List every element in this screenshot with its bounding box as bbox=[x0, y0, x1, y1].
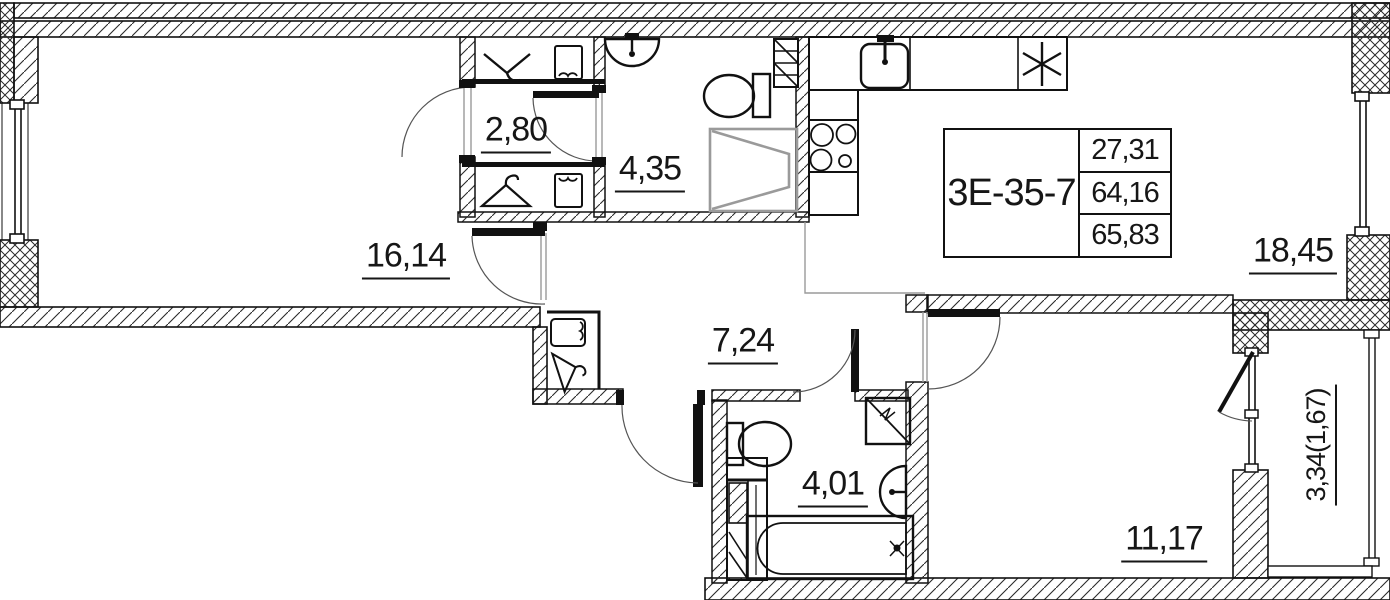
unit-code: 3Е-35-7 bbox=[945, 130, 1080, 256]
hall-closet bbox=[547, 312, 599, 392]
room-label-bedroom: 16,14 bbox=[362, 239, 450, 280]
room-label-bathroom: 4,01 bbox=[798, 467, 868, 508]
wall-bottom-left bbox=[0, 307, 540, 327]
kitchen-counter bbox=[809, 37, 1067, 90]
room-label-bedroom2: 11,17 bbox=[1121, 522, 1207, 563]
wall-left-column bbox=[0, 3, 14, 103]
room-label-bathroom-master: 4,35 bbox=[615, 152, 685, 193]
wall-right-pier bbox=[1347, 235, 1390, 300]
room-label-balcony: 3,34(1,67) bbox=[1303, 384, 1337, 505]
window-bedroom-left bbox=[2, 100, 28, 243]
area-table: 27,31 64,16 65,83 bbox=[1080, 130, 1170, 256]
room-label-kitchen-living: 18,45 bbox=[1249, 234, 1337, 275]
kitchen-sink-icon bbox=[861, 35, 908, 88]
wall-left-pier-bottom bbox=[0, 240, 38, 307]
clothes-rail-icon bbox=[484, 54, 530, 81]
shelf-icon bbox=[555, 46, 582, 79]
room-label-hallway: 7,24 bbox=[708, 324, 778, 365]
refrigerator-asterisk-icon bbox=[1023, 42, 1061, 86]
wall-bath-right-top bbox=[906, 295, 928, 312]
hanger-icon bbox=[482, 176, 530, 207]
wall-bottom-main bbox=[705, 578, 1390, 600]
wall-bath-left bbox=[712, 400, 727, 583]
closet-shelf-icon bbox=[551, 319, 585, 346]
wall-block-bottom bbox=[458, 212, 809, 222]
kitchen-base-cabinet bbox=[809, 90, 858, 215]
title-block: 3Е-35-7 27,31 64,16 65,83 bbox=[943, 128, 1172, 258]
wardrobe-top-divider bbox=[462, 79, 605, 84]
bathtub-icon bbox=[747, 516, 913, 579]
wall-bath-top-right bbox=[855, 390, 908, 401]
door-entrance bbox=[616, 390, 705, 487]
wall-left-pier-top bbox=[14, 37, 38, 103]
floor-plan-drawing bbox=[0, 0, 1390, 600]
wall-balcony-pier-top bbox=[1233, 313, 1268, 353]
wall-top-outer bbox=[14, 3, 1390, 18]
wall-top-inner bbox=[0, 21, 1390, 37]
area-total: 65,83 bbox=[1080, 213, 1170, 256]
wardrobe-bottom-divider bbox=[462, 162, 605, 167]
shower-tray-icon bbox=[710, 129, 797, 211]
apartment-floor-plan: 16,14 2,80 4,35 18,45 7,24 4,01 11,17 3,… bbox=[0, 0, 1390, 600]
area-living: 27,31 bbox=[1080, 130, 1170, 171]
room-label-wardrobe: 2,80 bbox=[481, 113, 551, 154]
washing-machine-icon bbox=[866, 398, 910, 444]
cooktop-4-burner-icon bbox=[809, 120, 858, 172]
toilet-icon bbox=[704, 74, 770, 117]
door-bedroom bbox=[472, 222, 547, 304]
washbasin2-icon bbox=[880, 466, 906, 518]
wall-balcony-pier-bottom bbox=[1233, 470, 1268, 578]
wall-wardrobe-bath-bottom bbox=[594, 161, 605, 217]
door-room2 bbox=[928, 309, 1000, 389]
closet-outline bbox=[547, 312, 599, 389]
closet-hanger-icon bbox=[552, 346, 589, 392]
door-bathroom bbox=[793, 329, 859, 392]
window-kitchen-right bbox=[1355, 92, 1369, 236]
wall-right-top bbox=[1352, 3, 1390, 93]
shelf-icon-2 bbox=[555, 174, 582, 207]
wall-under-closet bbox=[533, 389, 623, 404]
area-apartment: 64,16 bbox=[1080, 171, 1170, 214]
kitchen-zone-boundary bbox=[805, 222, 925, 293]
washbasin-icon bbox=[605, 33, 659, 66]
windows bbox=[2, 92, 1379, 577]
toilet2-icon bbox=[727, 422, 791, 466]
vent-shaft-icon bbox=[774, 39, 798, 87]
wall-bath-top-left bbox=[712, 390, 800, 401]
